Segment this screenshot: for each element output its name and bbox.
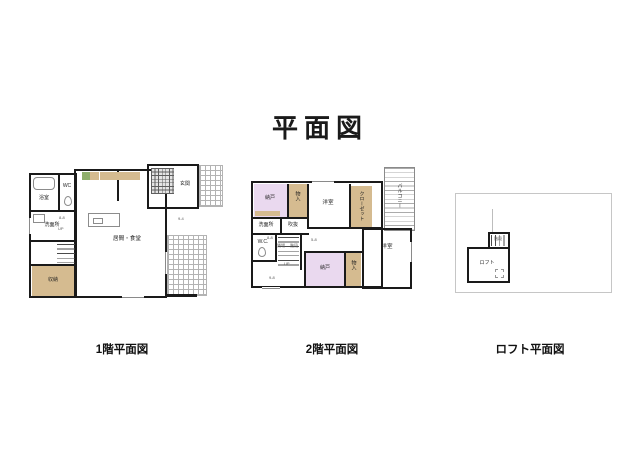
storage-nw-counter [255,211,280,216]
wall-bath-washroom [31,210,75,212]
wall-2f-e [307,227,381,229]
wall-washroom-hall [31,240,75,242]
room-label-bedroom-e: 洋室 [373,244,401,250]
wall-2f-a [287,184,289,217]
loft-caption: ロフト平面図 [460,341,600,357]
kitchen-stove [82,172,90,180]
wall-2f-d [349,184,351,228]
stairs-up-label: UP [58,227,64,231]
window-2f-north [312,180,334,183]
room-label-loft: ロフト [475,261,499,267]
label-loft-stairs: 階段 [494,237,502,241]
east-room-walls [362,228,412,289]
wall-2f-l [304,251,306,288]
toilet-2f [258,247,266,257]
kitchen-counter [100,172,140,180]
kitchen-island [88,213,120,227]
roof-ridge-line [492,209,493,233]
room-label-void: 吹抜 [286,223,300,229]
dim-1f-a: 8-8 [59,216,65,220]
bathtub [33,177,55,190]
kitchen-cabinet [90,172,99,180]
entrance-tile-floor [151,168,174,194]
window-west [28,218,31,234]
window-2f-south [262,287,280,290]
label-up-2f: UP [284,262,290,266]
terrace-tile-southeast [167,235,207,296]
room-label-closet-n: クローゼット [358,191,364,221]
wall-2f-g [280,217,282,235]
room-label-washroom-2f: 洗面所 [254,223,278,229]
dim-1f-b: 9-4 [178,217,184,221]
kitchen-sink [93,218,103,224]
floor1-plan: 浴室 WC 洗面所 収納 居間・食堂 玄関 UP 8-8 9-4 [27,162,227,302]
wall-2f-j [300,235,302,270]
room-label-wc-2f: W.C. [255,240,271,246]
room-label-closet-s: 物入 [350,260,356,270]
window-south [122,296,144,299]
room-label-storage-nw: 納戸 [258,196,282,202]
dim-2f-a: 8-8 [267,236,273,240]
loft-hatch-opening [495,269,504,278]
wall-2f-k [304,251,362,253]
floor-plan-sheet: 平面図 [0,0,640,452]
wall-bath-wc [58,175,60,211]
floor2-plan: 納戸 物入 洋室 クローゼット バルコニー 洗面所 吹抜 W.C. 踊場 階段 … [250,167,420,292]
room-label-storage: 収納 [38,278,68,284]
room-label-closet-nw: 物入 [294,191,300,201]
dim-2f-c: 9-8 [269,276,275,280]
wall-2f-m [344,253,346,288]
room-label-bedroom-n: 洋室 [314,200,342,206]
toilet [64,196,72,206]
dim-2f-b: 5-8 [311,238,317,242]
wall-bottom-right [167,294,197,297]
porch-tile-northeast [199,165,223,207]
washbasin [33,214,45,223]
floor1-caption: 1階平面図 [52,341,192,357]
room-label-entrance: 玄関 [173,182,197,188]
room-label-bath: 浴室 [33,196,55,202]
room-label-living-dining: 居間・食堂 [105,236,149,242]
label-landing: 踊場 [277,244,285,248]
wall-2f-h [275,235,277,262]
room-label-storage-s: 納戸 [313,266,337,272]
wall-2f-b [307,184,309,228]
room-label-balcony: バルコニー [396,183,402,208]
floor2-caption: 2階平面図 [262,341,402,357]
window-east [164,252,167,274]
loft-plan: 階段 ロフト [455,193,612,293]
room-label-wc: WC [60,184,74,190]
window-2f-east [410,242,413,262]
wall-2f-i [253,260,277,262]
label-stairs-2f: 階段 [290,244,298,248]
page-title: 平面図 [0,108,640,145]
stairs-treads [57,244,75,264]
